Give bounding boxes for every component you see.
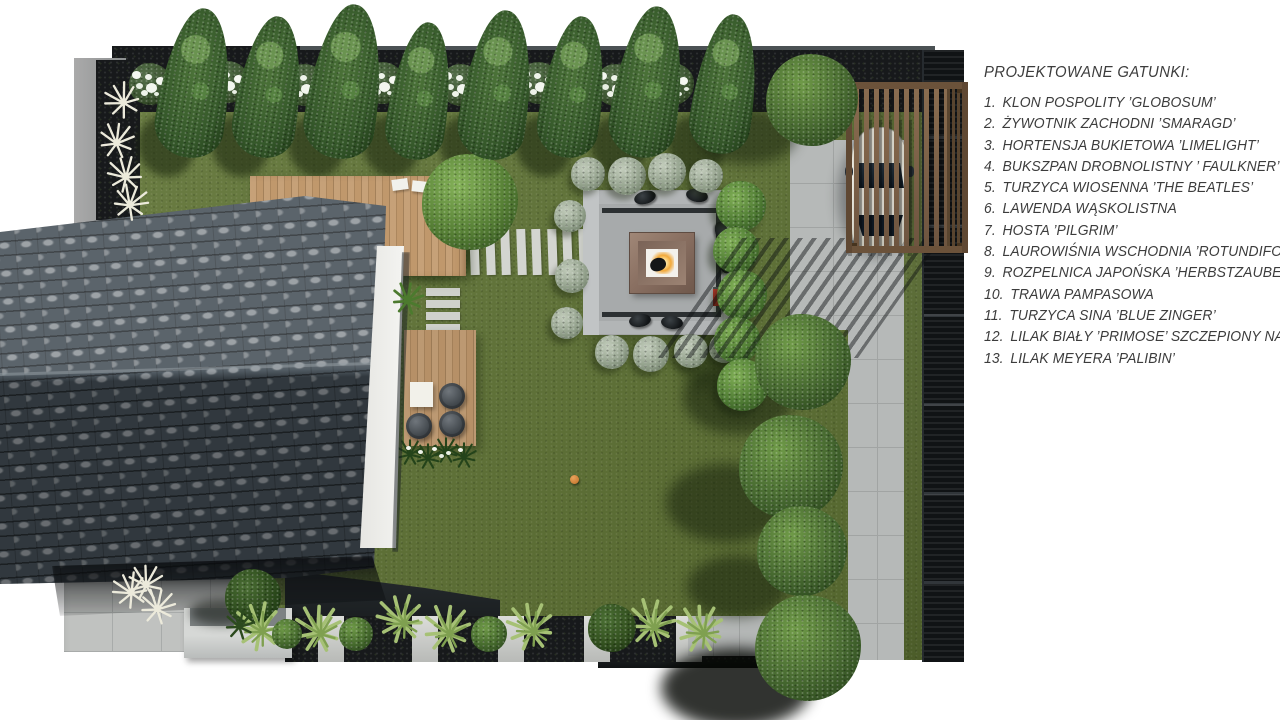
legend-item: 9.ROZPELNICA JAPOŃSKA ’HERBSTZAUBER’ — [984, 263, 1272, 284]
legend-item-number: 5. — [984, 178, 996, 199]
legend-item-number: 7. — [984, 221, 996, 242]
legend-item: 3.HORTENSJA BUKIETOWA ’LIMELIGHT’ — [984, 136, 1272, 157]
legend-item-number: 6. — [984, 199, 996, 220]
legend-item-label: LAWENDA WĄSKOLISTNA — [1003, 199, 1177, 220]
conifer-tree — [604, 2, 695, 163]
legend-item-number: 10. — [984, 285, 1004, 306]
legend-item: 4.BUKSZPAN DROBNOLISTNY ’ FAULKNER’ — [984, 157, 1272, 178]
conifer-tree — [298, 0, 393, 164]
legend-item-label: LILAK MEYERA ’PALIBIN’ — [1010, 349, 1175, 370]
deciduous-tree — [755, 314, 851, 410]
conifer-tree — [150, 3, 243, 162]
conifer-tree — [453, 6, 544, 165]
deciduous-tree — [757, 506, 847, 596]
legend-item-label: KLON POSPOLITY ’GLOBOSUM’ — [1003, 93, 1216, 114]
maple-globosum-tree — [422, 154, 518, 250]
legend-item: 11.TURZYCA SINA ’BLUE ZINGER’ — [984, 306, 1272, 327]
legend-item: 7.HOSTA ’PILGRIM’ — [984, 221, 1272, 242]
legend-item: 6.LAWENDA WĄSKOLISTNA — [984, 199, 1272, 220]
deciduous-tree — [755, 595, 861, 701]
legend-item-label: HOSTA ’PILGRIM’ — [1003, 221, 1118, 242]
legend-item: 8.LAUROWIŚNIA WSCHODNIA ’ROTUNDIFOLIA’ — [984, 242, 1272, 263]
legend-item-label: ROZPELNICA JAPOŃSKA ’HERBSTZAUBER’ — [1003, 263, 1280, 284]
conifer-tree — [532, 12, 615, 162]
legend-item-label: LILAK BIAŁY ’PRIMOSE’ SZCZEPIONY NA PNIU — [1010, 327, 1280, 348]
legend-item-number: 2. — [984, 114, 996, 135]
legend-item-number: 11. — [984, 306, 1003, 327]
legend-item-number: 3. — [984, 136, 996, 157]
legend-item-label: TRAWA PAMPASOWA — [1010, 285, 1154, 306]
legend-item-label: ŻYWOTNIK ZACHODNI ’SMARAGD’ — [1003, 114, 1236, 135]
legend-item-number: 9. — [984, 263, 996, 284]
conifer-tree — [381, 18, 462, 164]
legend-item: 12.LILAK BIAŁY ’PRIMOSE’ SZCZEPIONY NA P… — [984, 327, 1272, 348]
legend-item-number: 8. — [984, 242, 996, 263]
legend-item: 1.KLON POSPOLITY ’GLOBOSUM’ — [984, 93, 1272, 114]
legend-item-number: 13. — [984, 349, 1004, 370]
legend-item: 5.TURZYCA WIOSENNA ’THE BEATLES’ — [984, 178, 1272, 199]
legend-item-label: TURZYCA WIOSENNA ’THE BEATLES’ — [1003, 178, 1254, 199]
legend-item-label: TURZYCA SINA ’BLUE ZINGER’ — [1009, 306, 1215, 327]
legend-item-label: LAUROWIŚNIA WSCHODNIA ’ROTUNDIFOLIA’ — [1003, 242, 1280, 263]
legend-item: 2.ŻYWOTNIK ZACHODNI ’SMARAGD’ — [984, 114, 1272, 135]
legend: PROJEKTOWANE GATUNKI: 1.KLON POSPOLITY ’… — [984, 62, 1272, 370]
legend-item: 10.TRAWA PAMPASOWA — [984, 285, 1272, 306]
deciduous-tree — [739, 415, 843, 519]
conifer-tree — [227, 12, 312, 162]
legend-item-number: 4. — [984, 157, 996, 178]
legend-title: PROJEKTOWANE GATUNKI: — [984, 62, 1272, 84]
legend-item: 13.LILAK MEYERA ’PALIBIN’ — [984, 349, 1272, 370]
legend-item-number: 12. — [984, 327, 1004, 348]
conifer-tree — [684, 10, 767, 158]
legend-item-number: 1. — [984, 93, 996, 114]
legend-list: 1.KLON POSPOLITY ’GLOBOSUM’2.ŻYWOTNIK ZA… — [984, 93, 1272, 370]
garden-plan-render: PROJEKTOWANE GATUNKI: 1.KLON POSPOLITY ’… — [0, 0, 1280, 720]
legend-item-label: HORTENSJA BUKIETOWA ’LIMELIGHT’ — [1003, 136, 1259, 157]
legend-item-label: BUKSZPAN DROBNOLISTNY ’ FAULKNER’ — [1003, 157, 1280, 178]
deciduous-tree — [766, 54, 858, 146]
